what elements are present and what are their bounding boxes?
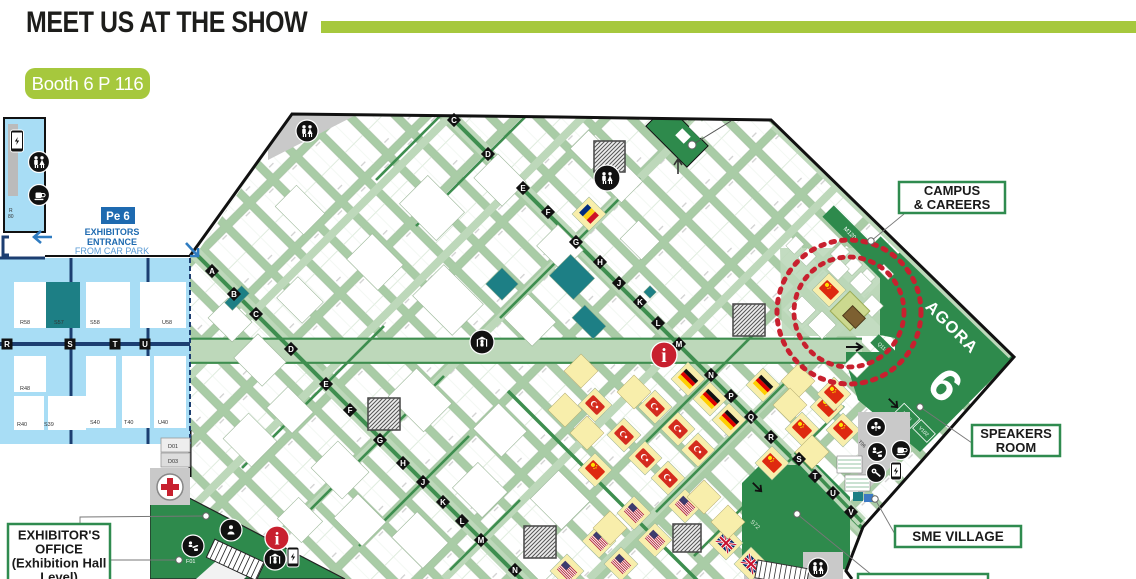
svg-text:F: F xyxy=(546,208,551,217)
svg-text:U40: U40 xyxy=(158,420,168,426)
svg-text:U58: U58 xyxy=(162,320,172,326)
svg-text:J: J xyxy=(617,279,621,288)
svg-text:C: C xyxy=(253,310,259,319)
svg-text:H: H xyxy=(400,459,406,468)
svg-text:U: U xyxy=(142,340,148,349)
svg-text:SPEAKERS: SPEAKERS xyxy=(980,426,1052,441)
svg-text:R58: R58 xyxy=(20,320,30,326)
svg-text:G: G xyxy=(377,436,383,445)
svg-text:D03: D03 xyxy=(168,459,178,465)
svg-text:T: T xyxy=(813,472,818,481)
svg-text:B: B xyxy=(231,290,237,299)
svg-text:E: E xyxy=(323,380,329,389)
svg-text:S40: S40 xyxy=(90,420,100,426)
svg-text:H: H xyxy=(597,258,603,267)
svg-text:i: i xyxy=(661,346,667,367)
svg-text:K: K xyxy=(637,298,643,307)
svg-text:R: R xyxy=(768,433,774,442)
svg-text:C: C xyxy=(451,116,457,125)
svg-text:SME VILLAGE: SME VILLAGE xyxy=(912,529,1004,544)
svg-text:F01: F01 xyxy=(186,559,195,565)
svg-text:EXHIBITORS: EXHIBITORS xyxy=(85,227,140,237)
svg-text:E: E xyxy=(520,184,526,193)
svg-text:L: L xyxy=(460,517,465,526)
svg-text:N: N xyxy=(708,371,714,380)
svg-text:CAMPUS: CAMPUS xyxy=(924,183,981,198)
svg-text:Q: Q xyxy=(748,413,754,422)
svg-text:F: F xyxy=(348,406,353,415)
svg-text:OFFICE: OFFICE xyxy=(35,542,83,557)
svg-text:R40: R40 xyxy=(17,422,27,428)
svg-text:S58: S58 xyxy=(90,320,100,326)
svg-text:Level): Level) xyxy=(40,570,78,579)
svg-text:V: V xyxy=(848,508,854,517)
svg-text:K: K xyxy=(440,498,446,507)
svg-text:T40: T40 xyxy=(124,420,133,426)
svg-text:ROOM: ROOM xyxy=(996,440,1036,455)
svg-text:D01: D01 xyxy=(168,444,178,450)
svg-text:R48: R48 xyxy=(20,386,30,392)
svg-text:D: D xyxy=(288,345,294,354)
svg-text:S57: S57 xyxy=(54,320,64,326)
svg-text:J: J xyxy=(421,478,425,487)
svg-text:S: S xyxy=(67,340,73,349)
svg-text:M: M xyxy=(478,536,485,545)
svg-text:T: T xyxy=(113,340,118,349)
svg-text:U: U xyxy=(830,489,836,498)
svg-text:L: L xyxy=(656,319,661,328)
svg-text:Pe 6: Pe 6 xyxy=(106,211,130,223)
svg-text:D: D xyxy=(485,150,491,159)
svg-text:P: P xyxy=(728,392,734,401)
svg-text:S39: S39 xyxy=(44,422,54,428)
svg-text:i: i xyxy=(274,529,279,549)
svg-text:(Exhibition Hall: (Exhibition Hall xyxy=(12,556,107,571)
svg-text:M: M xyxy=(676,340,683,349)
svg-text:80: 80 xyxy=(8,214,14,220)
svg-text:S: S xyxy=(796,455,802,464)
svg-text:& CAREERS: & CAREERS xyxy=(914,197,991,212)
svg-text:FROM CAR PARK: FROM CAR PARK xyxy=(75,246,149,256)
svg-text:G: G xyxy=(573,238,579,247)
svg-text:A: A xyxy=(209,267,215,276)
svg-text:N: N xyxy=(512,566,518,575)
svg-text:R: R xyxy=(4,340,10,349)
svg-text:EXHIBITOR'S: EXHIBITOR'S xyxy=(18,528,101,543)
